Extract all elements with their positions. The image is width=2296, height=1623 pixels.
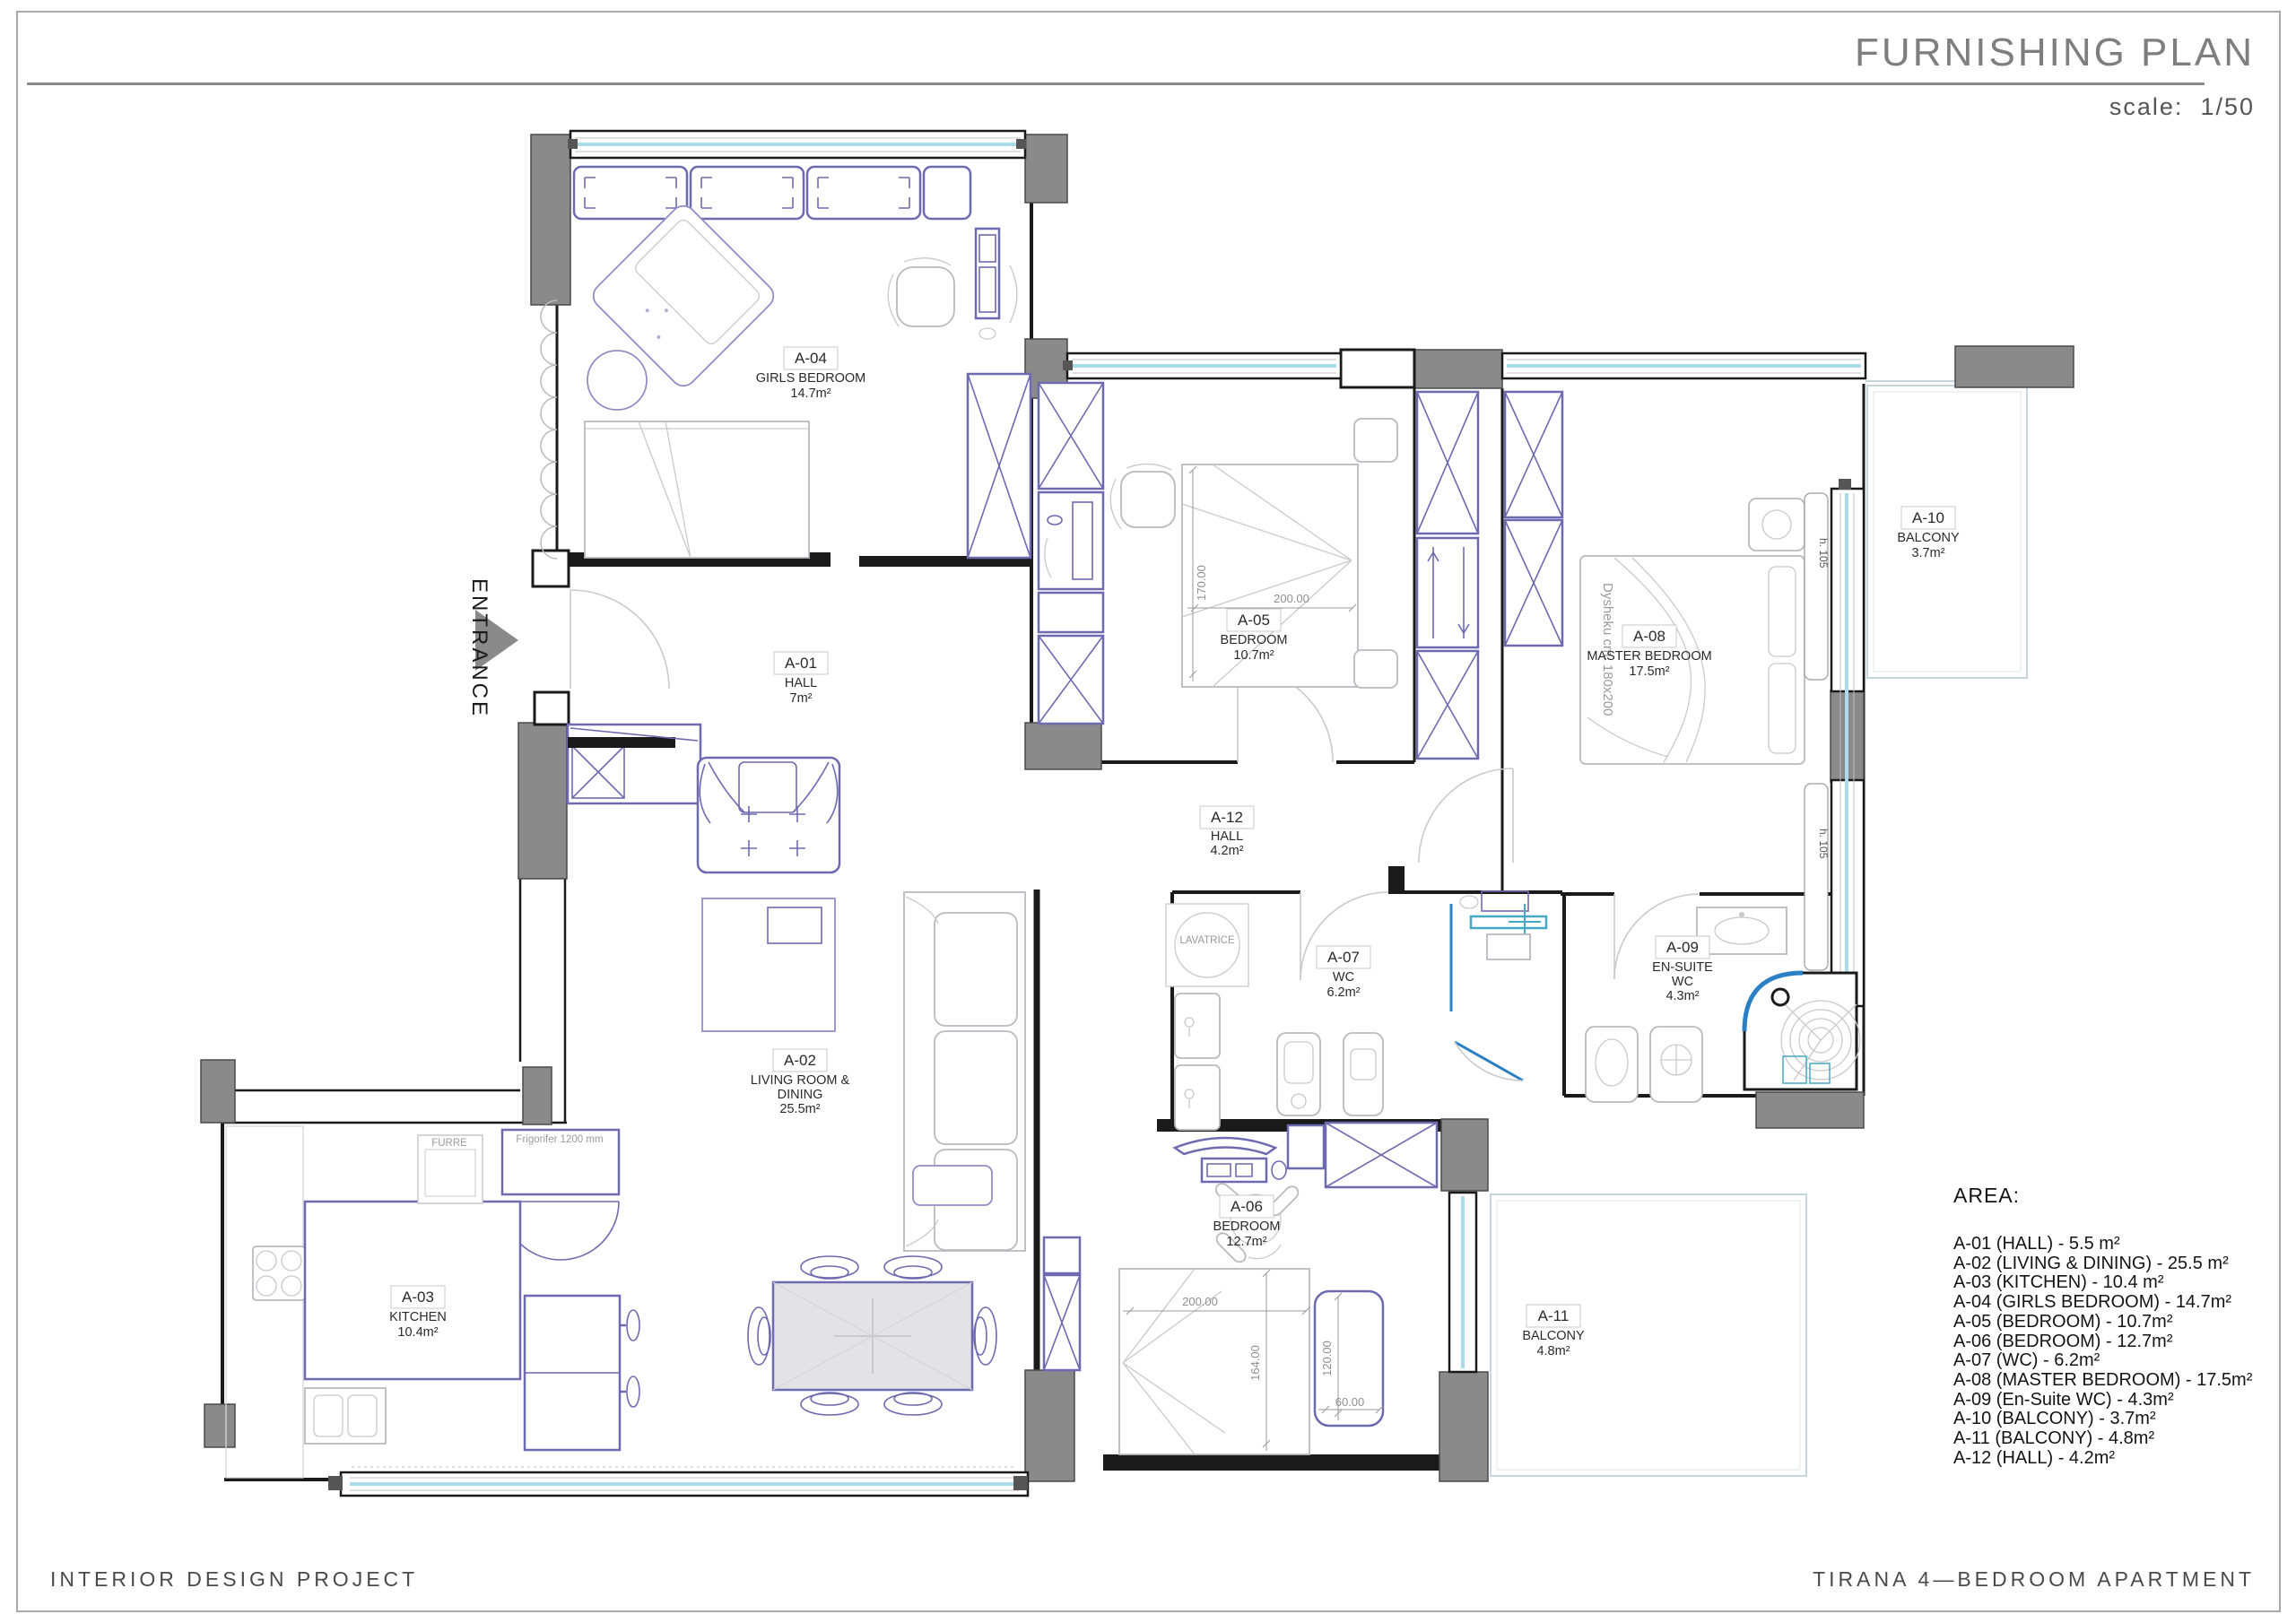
svg-text:BEDROOM: BEDROOM	[1213, 1219, 1281, 1234]
svg-text:3.7m²: 3.7m²	[1911, 546, 1944, 560]
dim-bed-a06-width: 164.00	[1248, 1345, 1262, 1381]
svg-text:MASTER BEDROOM: MASTER BEDROOM	[1587, 649, 1711, 664]
dim-bench-width: 60.00	[1335, 1395, 1365, 1409]
wardrobe-strip-corridor	[1417, 392, 1478, 759]
room-label-a03: A-03 KITCHEN 10.4m²	[389, 1286, 447, 1340]
furniture-bedroom-a06	[1044, 1123, 1437, 1454]
furniture-hall	[568, 725, 839, 1031]
svg-text:10.7m²: 10.7m²	[1233, 648, 1274, 663]
svg-text:A-02: A-02	[784, 1052, 816, 1069]
svg-text:A-12: A-12	[1211, 809, 1243, 826]
furniture-bedroom-a05	[1039, 383, 1397, 724]
dim-bed-a05-length: 200.00	[1274, 592, 1309, 605]
svg-text:BALCONY: BALCONY	[1897, 531, 1960, 545]
svg-text:HALL: HALL	[785, 676, 817, 690]
room-label-a11: A-11 BALCONY 4.8m²	[1522, 1305, 1585, 1358]
svg-text:A-03: A-03	[402, 1289, 434, 1306]
svg-text:WC: WC	[1333, 970, 1354, 985]
dim-bench-length: 120.00	[1320, 1341, 1334, 1376]
svg-text:A-10: A-10	[1912, 509, 1944, 526]
room-label-a10: A-10 BALCONY 3.7m²	[1897, 507, 1960, 560]
svg-text:4.3m²: 4.3m²	[1665, 989, 1699, 1003]
svg-text:KITCHEN: KITCHEN	[389, 1310, 447, 1324]
window-height-tag: h. 105	[1805, 493, 1830, 680]
room-label-a12: A-12 HALL 4.2m²	[1200, 806, 1254, 858]
svg-text:EN-SUITE: EN-SUITE	[1652, 960, 1713, 975]
svg-text:A-05: A-05	[1238, 612, 1270, 629]
room-label-a01: A-01 HALL 7m²	[774, 652, 828, 706]
svg-text:DINING: DINING	[778, 1088, 823, 1102]
svg-text:GIRLS BEDROOM: GIRLS BEDROOM	[756, 371, 865, 386]
entrance: ENTRANCE	[467, 578, 518, 718]
svg-text:7m²: 7m²	[790, 691, 813, 706]
svg-text:A-11: A-11	[1538, 1307, 1570, 1324]
svg-text:h. 105: h. 105	[1817, 538, 1830, 568]
svg-text:A-09: A-09	[1666, 939, 1699, 956]
svg-text:BEDROOM: BEDROOM	[1221, 633, 1288, 647]
svg-text:HALL: HALL	[1211, 829, 1243, 844]
dim-bed-a06-length: 200.00	[1182, 1295, 1218, 1308]
svg-text:A-08: A-08	[1633, 628, 1665, 645]
furniture-wc	[1166, 891, 1546, 1130]
svg-text:A-06: A-06	[1231, 1198, 1263, 1215]
svg-text:12.7m²: 12.7m²	[1226, 1235, 1266, 1249]
room-label-a04: A-04 GIRLS BEDROOM 14.7m²	[756, 347, 865, 401]
oven-label: FURRE	[431, 1138, 467, 1149]
svg-text:WC: WC	[1672, 975, 1693, 989]
svg-text:14.7m²: 14.7m²	[790, 386, 831, 401]
svg-text:4.2m²: 4.2m²	[1210, 844, 1243, 858]
room-label-a02: A-02 LIVING ROOM & DINING 25.5m²	[751, 1049, 850, 1116]
svg-text:LIVING ROOM &: LIVING ROOM &	[751, 1073, 850, 1088]
svg-text:h. 105: h. 105	[1817, 829, 1830, 859]
entrance-label: ENTRANCE	[467, 578, 491, 718]
room-label-a09: A-09 EN-SUITE WC 4.3m²	[1652, 936, 1713, 1003]
svg-text:A-01: A-01	[785, 655, 817, 672]
svg-text:4.8m²: 4.8m²	[1536, 1344, 1570, 1358]
svg-text:10.4m²: 10.4m²	[397, 1325, 438, 1340]
room-label-a07: A-07 WC 6.2m²	[1317, 946, 1370, 1000]
floor-plan-svg: ENTRANCE Dysheku cm. 180x200 LAVATRICE F…	[0, 0, 2296, 1623]
fridge-label: Frigorifer 1200 mm	[516, 1134, 603, 1145]
svg-text:25.5m²: 25.5m²	[779, 1102, 820, 1116]
svg-text:A-07: A-07	[1327, 949, 1360, 966]
svg-text:BALCONY: BALCONY	[1522, 1329, 1585, 1343]
dim-bed-a05-width: 170.00	[1195, 565, 1208, 601]
svg-text:A-04: A-04	[795, 350, 827, 367]
washer-label: LAVATRICE	[1179, 935, 1235, 946]
svg-text:6.2m²: 6.2m²	[1326, 985, 1360, 1000]
window-height-tag: h. 105	[1805, 784, 1830, 970]
furniture-master-bedroom	[1505, 392, 1805, 764]
svg-text:17.5m²: 17.5m²	[1629, 664, 1669, 679]
